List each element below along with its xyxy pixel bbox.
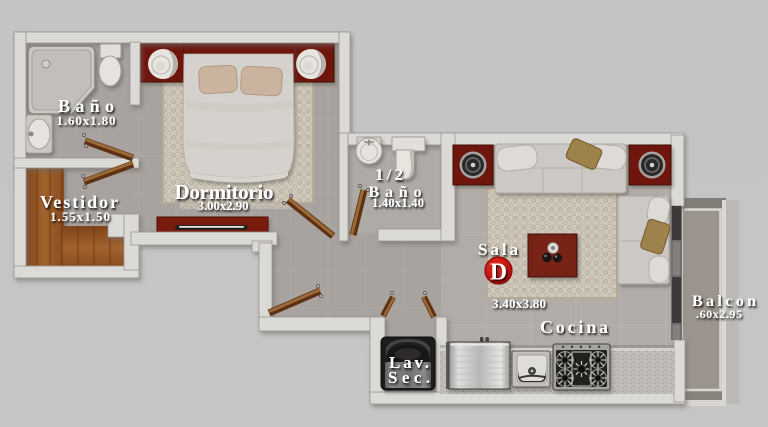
svg-text:3.40x3.80: 3.40x3.80 [492, 296, 546, 311]
svg-text:1.40x1.40: 1.40x1.40 [372, 196, 424, 210]
svg-text:D: D [490, 260, 507, 286]
svg-text:3.00x2.90: 3.00x2.90 [198, 198, 249, 213]
svg-text:.60x2.95: .60x2.95 [696, 307, 742, 321]
svg-text:Sala: Sala [478, 240, 519, 259]
svg-text:1.60x1.80: 1.60x1.80 [57, 113, 116, 128]
svg-text:1/2: 1/2 [375, 165, 403, 184]
svg-text:1.55x1.50: 1.55x1.50 [50, 209, 110, 224]
